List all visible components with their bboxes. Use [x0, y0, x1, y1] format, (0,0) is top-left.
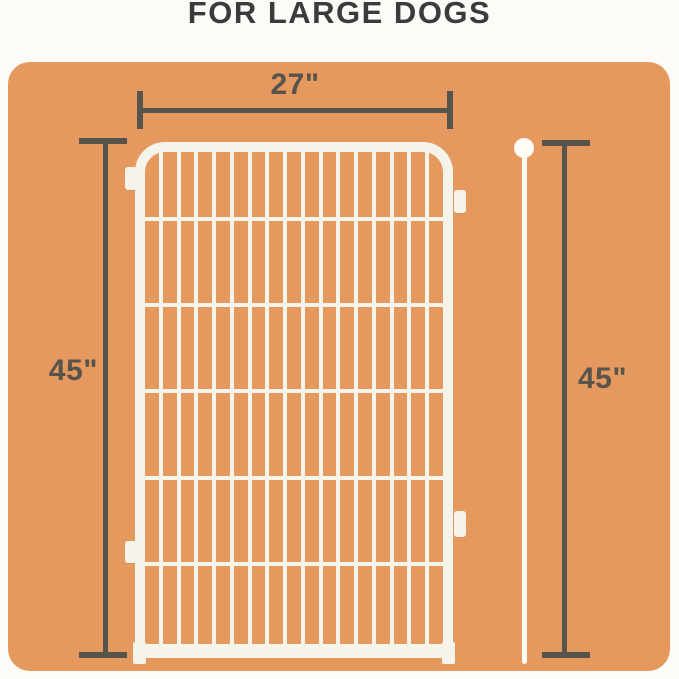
pole-ball-top	[514, 138, 534, 158]
pole-rod-illustration	[522, 156, 527, 664]
fence-wire-vertical	[265, 152, 269, 644]
fence-wire-vertical	[283, 152, 287, 644]
fence-wire-vertical	[301, 152, 305, 644]
fence-wire-horizontal	[145, 389, 443, 393]
fence-wire-vertical	[230, 152, 234, 644]
fence-wire-vertical	[319, 152, 323, 644]
fence-wire-vertical	[354, 152, 358, 644]
fence-vertical-wires	[145, 152, 443, 644]
left-height-dimension-label: 45"	[18, 354, 98, 388]
fence-connector-tab	[125, 167, 137, 190]
fence-wire-horizontal	[145, 476, 443, 480]
right-height-dimension-cap-bottom	[542, 652, 590, 658]
fence-panel-illustration	[135, 142, 453, 658]
page-title: FOR LARGE DOGS	[0, 0, 679, 30]
fence-wire-vertical	[248, 152, 252, 644]
fence-wire-vertical	[336, 152, 340, 644]
width-dimension-line	[137, 108, 453, 113]
right-height-dimension-line	[562, 142, 567, 654]
fence-foot	[133, 642, 146, 664]
fence-wire-vertical	[390, 152, 394, 644]
fence-foot	[442, 642, 455, 664]
fence-connector-tab	[454, 511, 466, 537]
fence-wire-vertical	[372, 152, 376, 644]
width-dimension-label: 27"	[137, 68, 453, 102]
fence-connector-tab	[454, 190, 466, 213]
fence-wire-horizontal	[145, 562, 443, 566]
fence-wire-vertical	[159, 152, 163, 644]
left-height-dimension-cap-bottom	[79, 652, 127, 658]
orange-background-panel: 27" 45" 45"	[8, 62, 670, 671]
fence-wire-vertical	[194, 152, 198, 644]
right-height-dimension-label: 45"	[578, 362, 668, 396]
fence-wire-vertical	[425, 152, 429, 644]
fence-wire-vertical	[177, 152, 181, 644]
fence-wire-horizontal	[145, 217, 443, 221]
fence-wire-horizontal	[145, 303, 443, 307]
fence-connector-tab	[125, 541, 137, 563]
fence-wire-vertical	[212, 152, 216, 644]
fence-wire-vertical	[407, 152, 411, 644]
left-height-dimension-line	[103, 140, 108, 654]
product-infographic: FOR LARGE DOGS 27" 45" 45"	[0, 0, 679, 679]
